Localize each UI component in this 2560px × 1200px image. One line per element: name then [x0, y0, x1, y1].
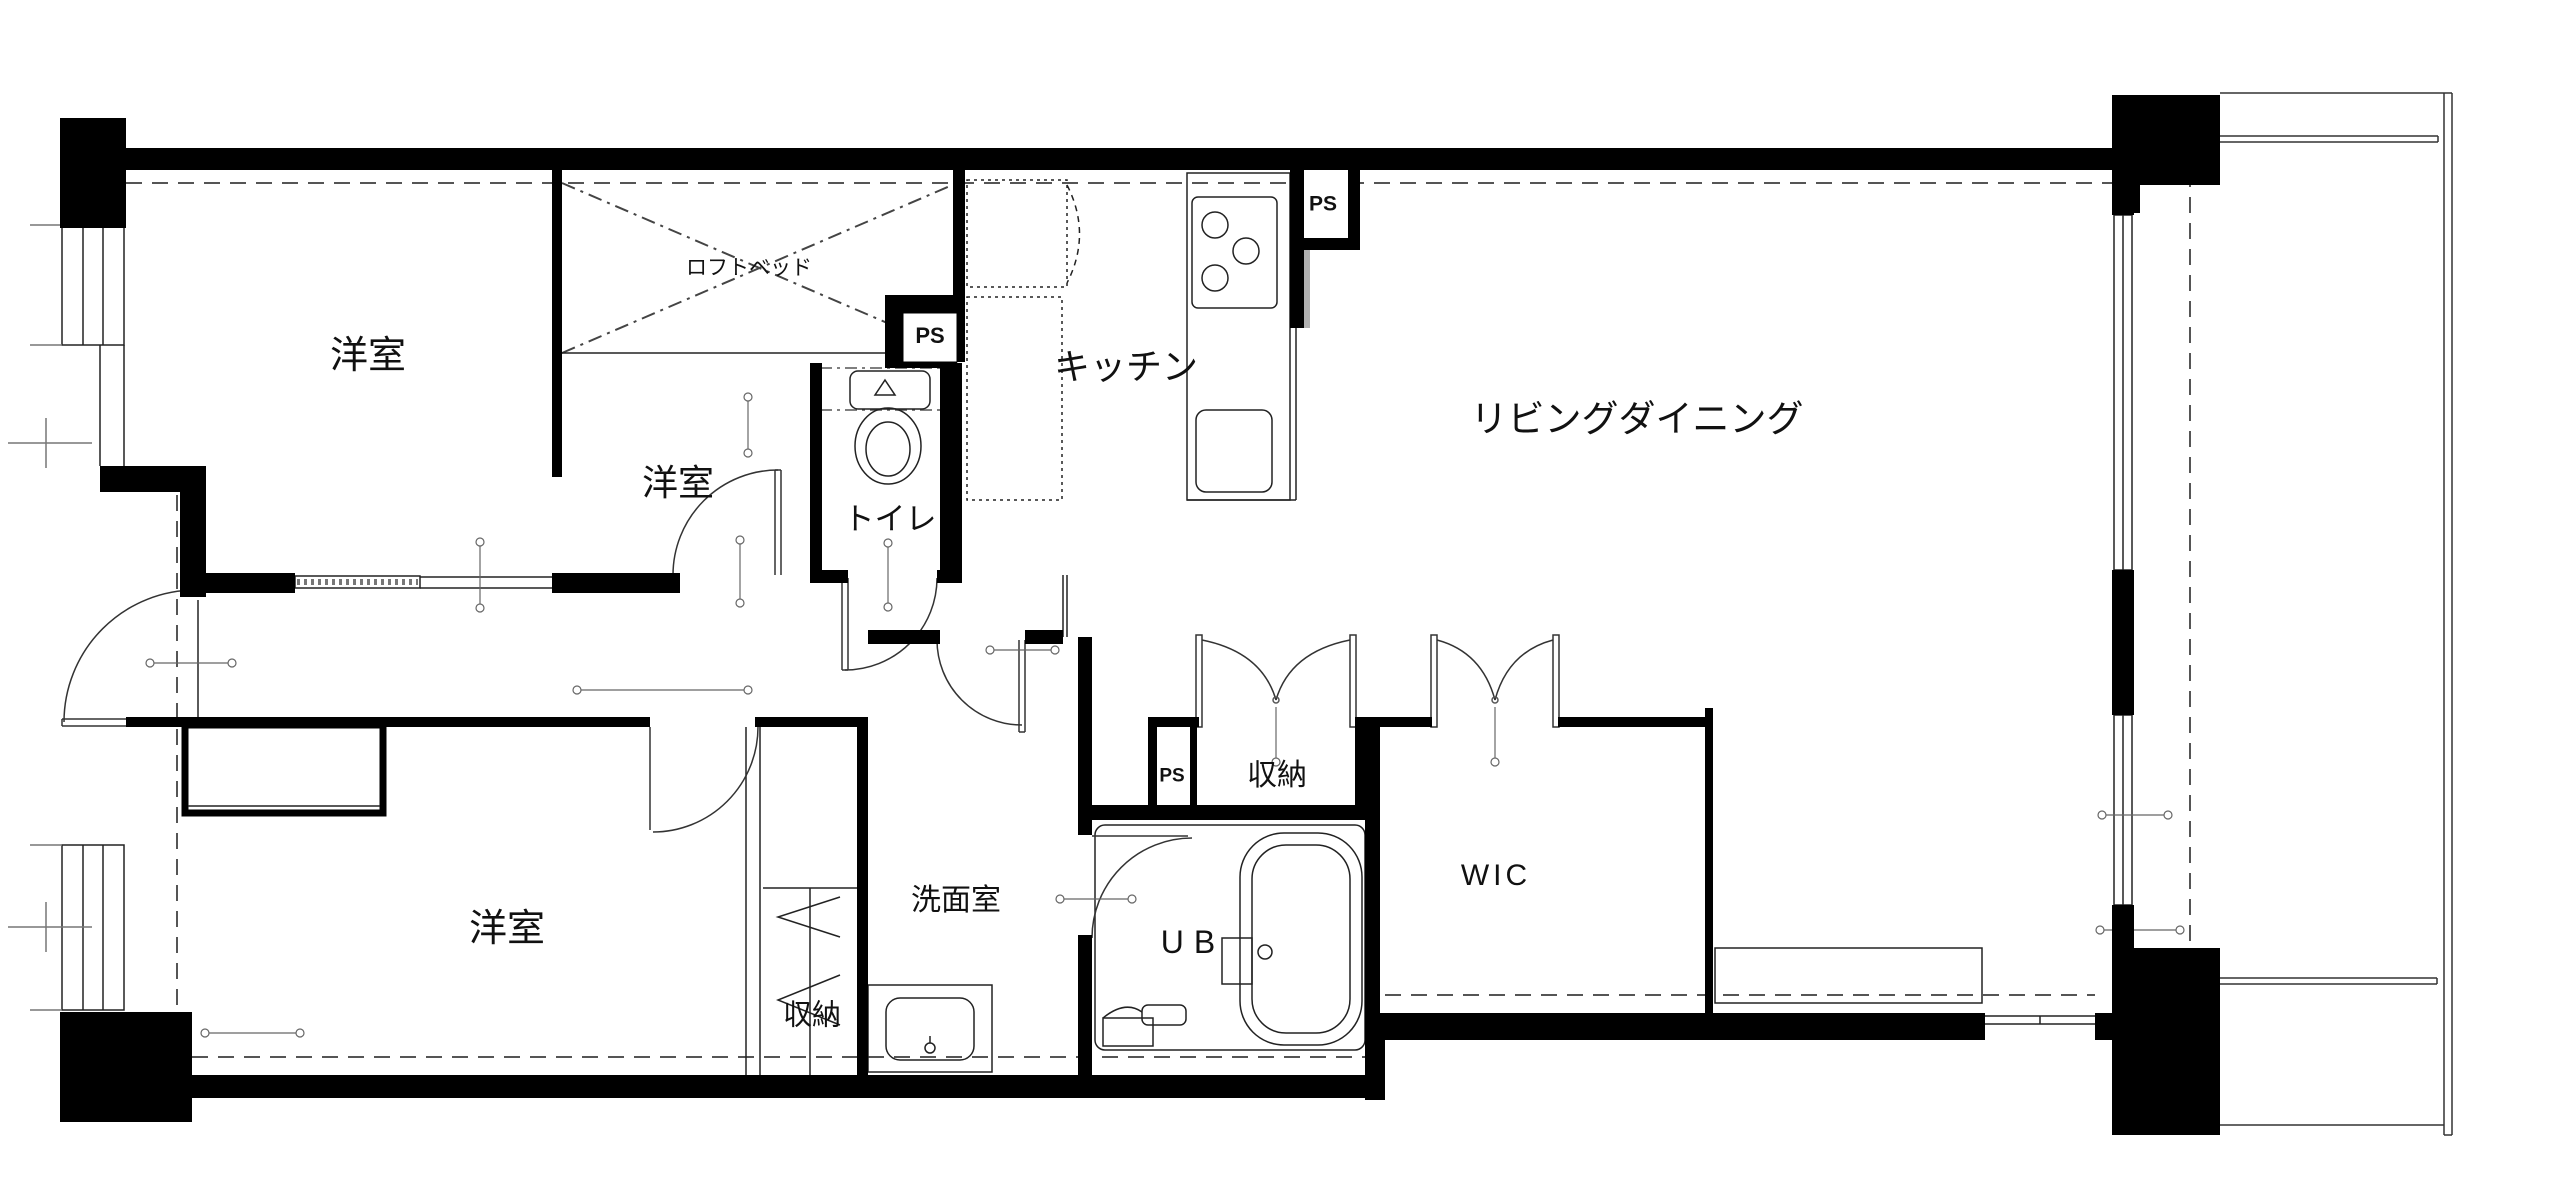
toilet-door: [842, 578, 937, 670]
room-label-bedroom-nw: 洋室: [330, 337, 406, 375]
bedroom-sw-door: [650, 727, 758, 832]
entrance-door: [62, 590, 196, 726]
unit-bath-door: [1092, 836, 1192, 938]
room-label-toilet: トイレ: [844, 504, 937, 535]
window-ticks: [8, 225, 92, 1010]
room-label-unit-bath: UB: [1161, 926, 1225, 958]
room-label-ps-center: PS: [1159, 767, 1184, 786]
ps-interiors: [903, 172, 1348, 805]
washroom-door: [937, 640, 1025, 732]
room-label-bedroom-sw: 洋室: [469, 910, 545, 948]
window-bedroom-nw: [62, 225, 124, 345]
room-label-loft-bed: ロフトベッド: [686, 258, 812, 279]
thin-lines: [100, 173, 1982, 1075]
room-label-storage-south: 収納: [783, 1002, 841, 1031]
window-living-east-1: [2114, 215, 2132, 570]
walls: [60, 95, 2220, 1135]
floorplan-drawing: [0, 0, 2560, 1200]
balcony: [2220, 93, 2452, 1135]
room-label-storage-center: 収納: [1247, 761, 1307, 791]
window-living-east-2: [2114, 715, 2132, 905]
windows: [8, 215, 2132, 1024]
room-label-ps-toilet: PS: [915, 325, 944, 347]
room-label-kitchen: キッチン: [1054, 349, 1198, 385]
room-label-ps-kitchen: PS: [1309, 194, 1337, 215]
window-living-south: [1985, 1016, 2095, 1024]
room-label-washroom: 洗面室: [911, 886, 1001, 916]
balcony-railing: [2444, 93, 2452, 1135]
floor-plan: 洋室 ロフトベッド 洋室 トイレ キッチン リビングダイニング PS PS PS…: [0, 0, 2560, 1200]
room-label-bedroom-center: 洋室: [642, 465, 714, 501]
room-label-wic: WIC: [1461, 861, 1531, 891]
bedroom-sw-closet: [185, 725, 383, 813]
room-label-living-dining: リビングダイニング: [1471, 401, 1804, 438]
dashed-beam-lines: [126, 145, 2190, 1125]
